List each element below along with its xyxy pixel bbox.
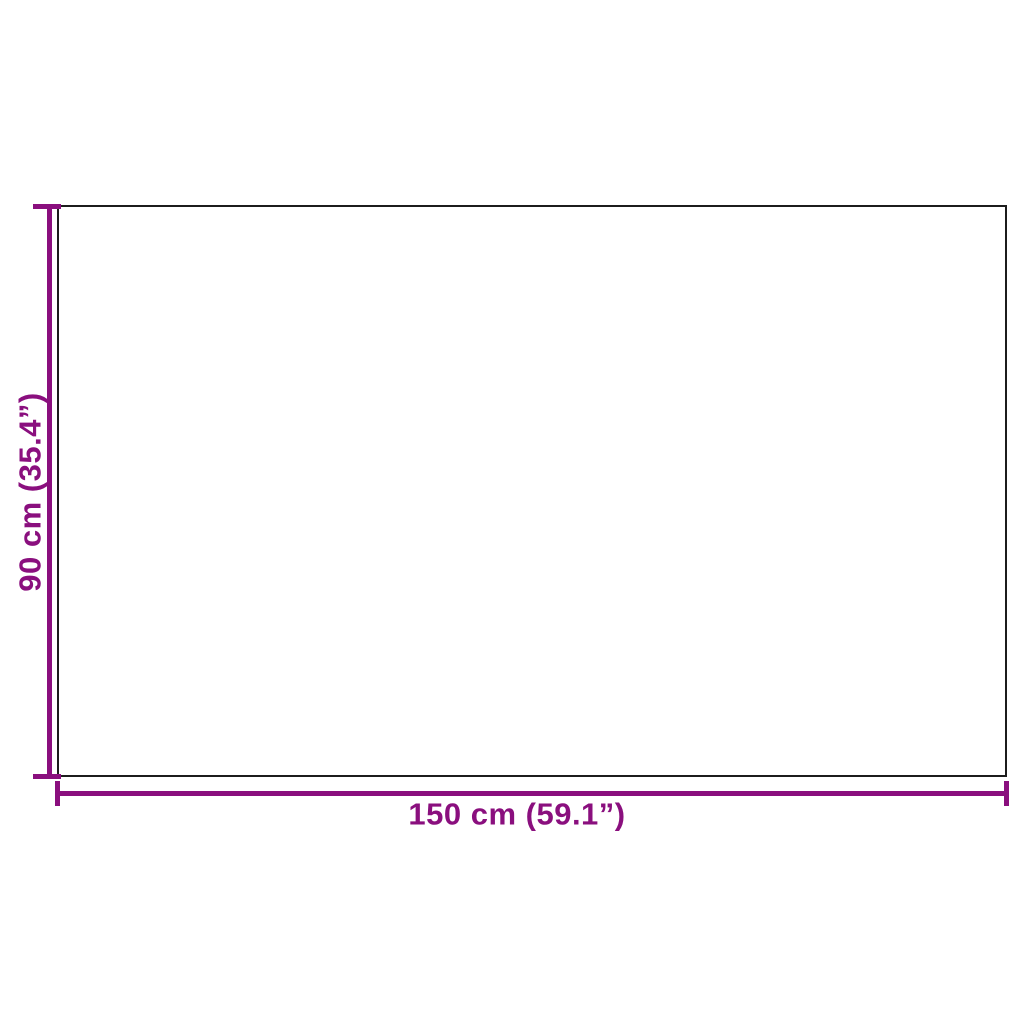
width-dimension-label: 150 cm (59.1”) [408, 799, 625, 830]
height-dimension-label: 90 cm (35.4”) [15, 392, 46, 592]
width-dimension-line [57, 791, 1009, 796]
product-outline-rectangle [57, 205, 1007, 777]
height-dimension-tick-bottom [33, 774, 61, 779]
product-dimension-diagram: 90 cm (35.4”) 150 cm (59.1”) [0, 0, 1024, 1024]
width-dimension-tick-right [1004, 781, 1009, 806]
height-dimension-line [47, 204, 52, 779]
